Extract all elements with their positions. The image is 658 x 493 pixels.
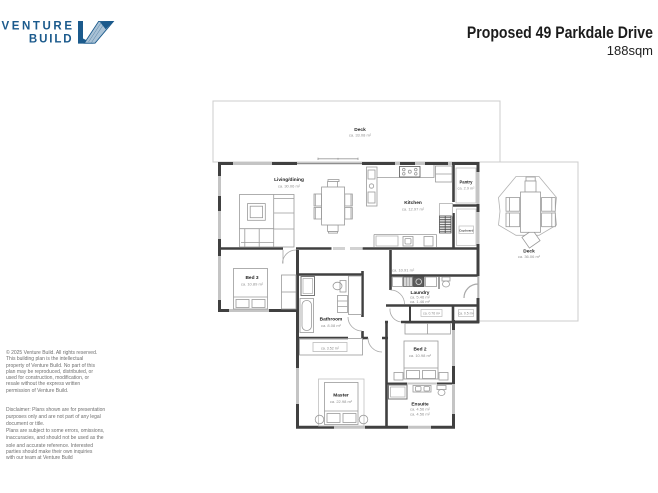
- svg-text:Kitchen: Kitchen: [404, 200, 422, 206]
- svg-text:ca. 0.76 m²: ca. 0.76 m²: [423, 312, 441, 316]
- svg-text:ca. 10.89 m²: ca. 10.89 m²: [241, 282, 264, 287]
- svg-text:Pantry: Pantry: [459, 180, 473, 185]
- svg-text:ca. 2.9 m²: ca. 2.9 m²: [458, 187, 476, 191]
- svg-text:ca. 30.06 m²: ca. 30.06 m²: [278, 184, 301, 189]
- svg-text:ca. 36.06 m²: ca. 36.06 m²: [518, 254, 541, 259]
- svg-text:Bed 2: Bed 2: [413, 347, 426, 353]
- svg-text:ca. 12.97 m²: ca. 12.97 m²: [402, 207, 425, 212]
- svg-text:Bathroom: Bathroom: [320, 317, 343, 323]
- svg-text:ca. 10.91 m²: ca. 10.91 m²: [392, 268, 415, 273]
- svg-text:ca. 10.98 m²: ca. 10.98 m²: [409, 353, 432, 358]
- svg-text:ca. 22.98 m²: ca. 22.98 m²: [330, 399, 353, 404]
- svg-text:ca. 3.52 m²: ca. 3.52 m²: [321, 347, 340, 351]
- svg-text:ca. 0.5 m²: ca. 0.5 m²: [458, 312, 474, 316]
- svg-text:ca. 8.08 m²: ca. 8.08 m²: [321, 323, 342, 328]
- svg-text:ca. 4.56 m²: ca. 4.56 m²: [410, 412, 431, 417]
- svg-text:Master: Master: [333, 393, 349, 399]
- svg-text:ca. 1.46 m²: ca. 1.46 m²: [410, 299, 431, 304]
- svg-text:Living/dining: Living/dining: [274, 177, 304, 183]
- svg-text:Cupboard: Cupboard: [459, 228, 473, 232]
- svg-text:Bed 3: Bed 3: [245, 275, 258, 281]
- svg-text:ca. 33.08 m²: ca. 33.08 m²: [349, 132, 372, 137]
